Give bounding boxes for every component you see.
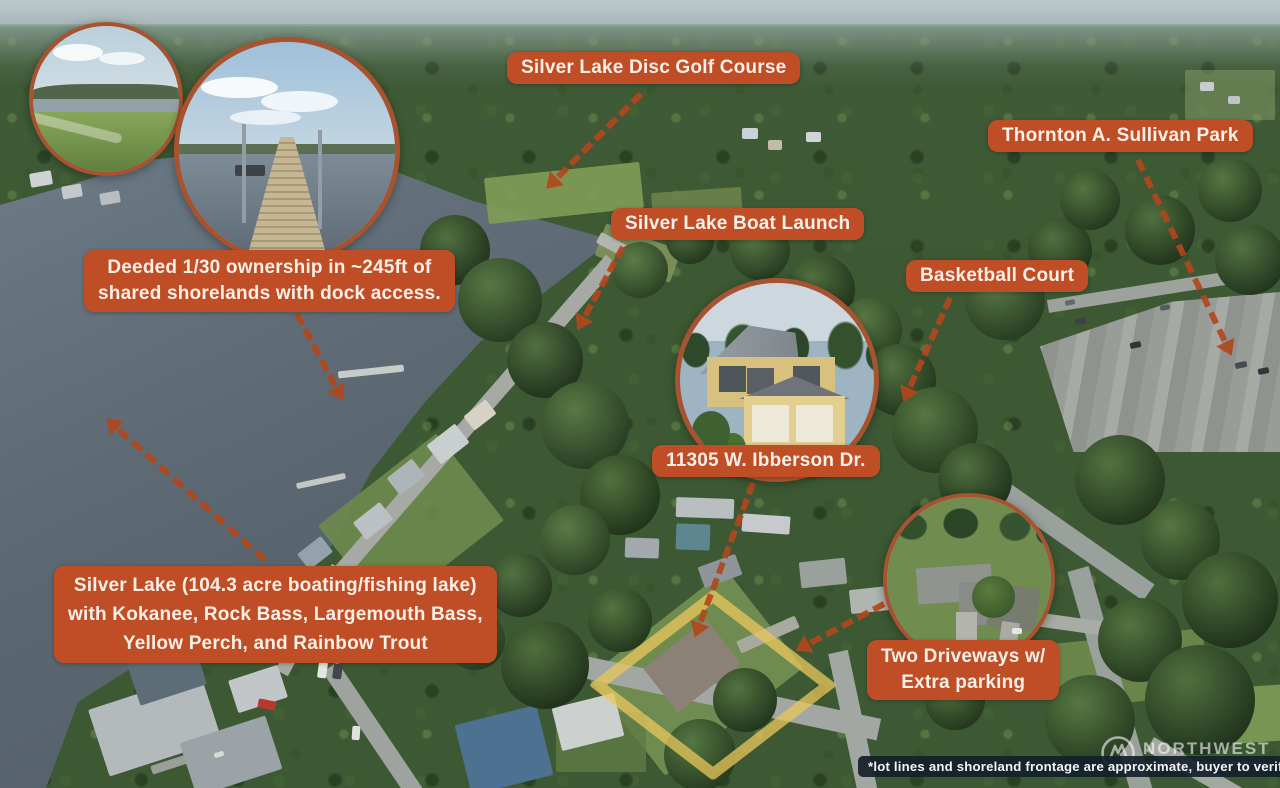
label-text-line2: with Kokanee, Rock Bass, Largemouth Bass… [68, 600, 483, 629]
dock-float [235, 165, 265, 176]
label-text: Silver Lake Disc Golf Course [521, 55, 786, 81]
rooftop [742, 128, 758, 139]
label-text-line1: Two Driveways w/ [881, 644, 1045, 670]
tree [501, 621, 589, 709]
vehicle [352, 726, 361, 741]
label-text: 11305 W. Ibberson Dr. [666, 448, 866, 474]
rooftop [676, 523, 711, 550]
grass-patch [1185, 70, 1275, 120]
label-address: 11305 W. Ibberson Dr. [652, 445, 880, 477]
tree [1182, 552, 1278, 648]
inset-yard-trees [887, 497, 1051, 563]
inset-shorelands-photo [29, 22, 183, 176]
dock-pole [242, 124, 246, 223]
rooftop [806, 132, 821, 142]
cloud [201, 77, 279, 99]
rooftop [741, 513, 790, 534]
disclaimer-note: *lot lines and shoreland frontage are ap… [858, 756, 1280, 777]
label-basketball-court: Basketball Court [906, 260, 1088, 292]
inset-sky [33, 26, 179, 93]
house-window [719, 366, 746, 391]
label-text-line1: Deeded 1/30 ownership in ~245ft of [98, 255, 441, 281]
rooftop [1200, 82, 1214, 91]
tree [1215, 225, 1280, 295]
label-thornton-park: Thornton A. Sullivan Park [988, 120, 1253, 152]
label-text-line3: Yellow Perch, and Rainbow Trout [68, 629, 483, 658]
watermark-brand: NORTHWEST [1143, 741, 1271, 757]
rooftop [1228, 96, 1240, 104]
label-deeded-shorelands: Deeded 1/30 ownership in ~245ft of share… [84, 250, 455, 312]
parked-car [1012, 628, 1022, 634]
rooftop [625, 537, 660, 558]
label-text-line2: shared shorelands with dock access. [98, 281, 441, 307]
tree [1060, 170, 1120, 230]
tree [1198, 158, 1262, 222]
yard-tree [972, 576, 1015, 619]
rooftop [799, 558, 847, 589]
label-text-line1: Silver Lake (104.3 acre boating/fishing … [68, 571, 483, 600]
label-text: Silver Lake Boat Launch [625, 211, 850, 237]
inset-dock-photo [174, 37, 400, 263]
label-disc-golf-course: Silver Lake Disc Golf Course [507, 52, 800, 84]
label-two-driveways: Two Driveways w/ Extra parking [867, 640, 1059, 700]
label-boat-launch: Silver Lake Boat Launch [611, 208, 864, 240]
label-text: Basketball Court [920, 263, 1074, 289]
tree [540, 505, 610, 575]
tree [488, 553, 552, 617]
cloud [53, 44, 103, 62]
rooftop [676, 497, 735, 519]
aerial-photo: Silver Lake Disc Golf Course Thornton A.… [0, 0, 1280, 788]
rooftop [768, 140, 782, 150]
label-text-line2: Extra parking [881, 670, 1045, 696]
garage-door [752, 405, 789, 442]
label-silver-lake-info: Silver Lake (104.3 acre boating/fishing … [54, 566, 497, 663]
label-text: Thornton A. Sullivan Park [1002, 123, 1239, 149]
